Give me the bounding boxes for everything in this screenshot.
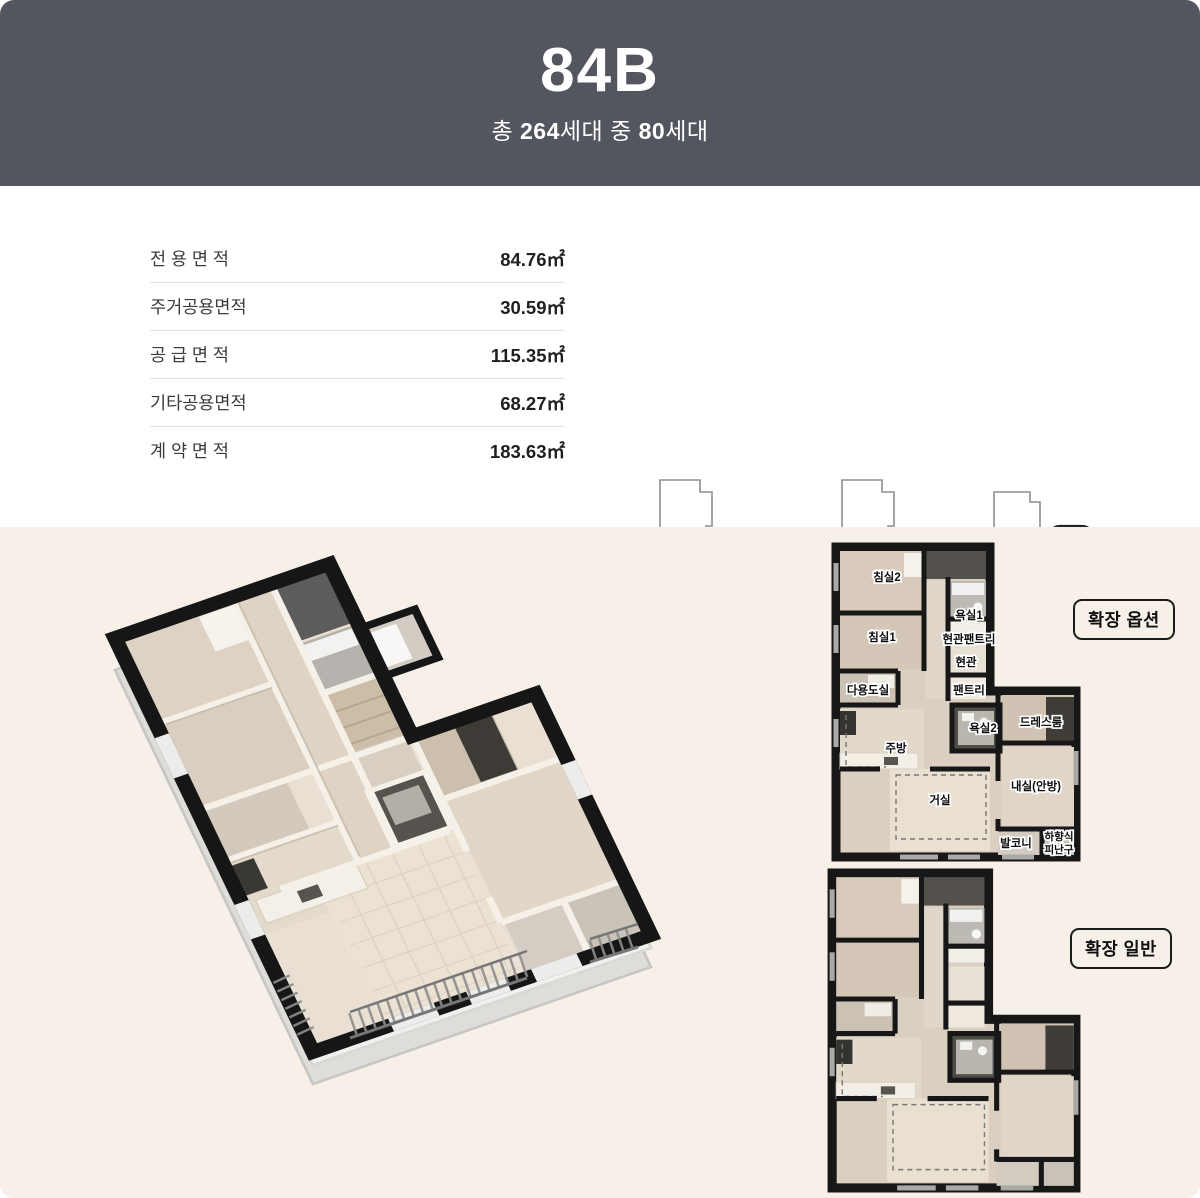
room-label-dressroom: 드레스룸	[1020, 715, 1063, 729]
room-label-living: 거실	[929, 793, 950, 807]
floorplan-extended-option: 침실2 침실1 욕실1 현관팬트리 현관 다용도실 팬트리 욕실2 드레스룸 주…	[830, 541, 1082, 863]
table-row: 주거공용면적 30.59㎡	[150, 283, 565, 331]
extended-general-badge: 확장 일반	[1070, 928, 1172, 969]
area-value: 30.59㎡	[500, 294, 565, 320]
table-row: 계 약 면 적 183.63㎡	[150, 427, 565, 474]
room-label-balcony: 발코니	[1000, 836, 1032, 850]
room-label-entry: 현관	[955, 655, 977, 669]
area-value: 84.76㎡	[500, 246, 565, 272]
room-label-bedroom2: 침실2	[873, 570, 901, 584]
floor-plans-section: 침실2 침실1 욕실1 현관팬트리 현관 다용도실 팬트리 욕실2 드레스룸 주…	[0, 527, 1200, 1198]
room-label-pantry: 팬트리	[953, 683, 985, 697]
area-table: 전 용 면 적 84.76㎡ 주거공용면적 30.59㎡ 공 급 면 적 115…	[150, 235, 565, 474]
floorplan-extended-general	[826, 867, 1082, 1194]
room-label-utility: 다용도실	[847, 683, 889, 697]
table-row: 공 급 면 적 115.35㎡	[150, 331, 565, 379]
table-row: 전 용 면 적 84.76㎡	[150, 235, 565, 283]
area-label: 공 급 면 적	[150, 342, 229, 367]
room-label-hatch: 피난구	[1045, 843, 1074, 856]
room-label-bath1: 욕실1	[955, 608, 983, 622]
unit-84b-sheet: 84B 총 264세대 중 80세대 전 용 면 적 84.76㎡ 주거공용면적…	[0, 0, 1200, 1198]
area-label: 계 약 면 적	[150, 438, 229, 463]
room-label-kitchen: 주방	[885, 741, 907, 755]
table-row: 기타공용면적 68.27㎡	[150, 379, 565, 427]
area-info-section: 전 용 면 적 84.76㎡ 주거공용면적 30.59㎡ 공 급 면 적 115…	[0, 186, 1200, 527]
room-label-hatch: 하향식	[1045, 830, 1074, 843]
area-label: 주거공용면적	[150, 294, 247, 319]
area-label: 기타공용면적	[150, 390, 247, 415]
area-value: 115.35㎡	[491, 342, 565, 368]
area-value: 68.27㎡	[500, 390, 565, 416]
area-label: 전 용 면 적	[150, 246, 229, 271]
room-label-entry-pantry: 현관팬트리	[943, 632, 996, 646]
isometric-floorplan-render	[95, 548, 755, 1166]
room-label-bath2: 욕실2	[969, 721, 997, 735]
extended-option-badge: 확장 옵션	[1073, 599, 1175, 640]
header: 84B 총 264세대 중 80세대	[0, 0, 1200, 186]
area-value: 183.63㎡	[490, 438, 565, 464]
unit-count-subtitle: 총 264세대 중 80세대	[491, 112, 708, 146]
room-label-master: 내실(안방)	[1011, 779, 1061, 793]
unit-type-title: 84B	[540, 40, 660, 102]
room-label-bedroom1: 침실1	[868, 630, 896, 644]
